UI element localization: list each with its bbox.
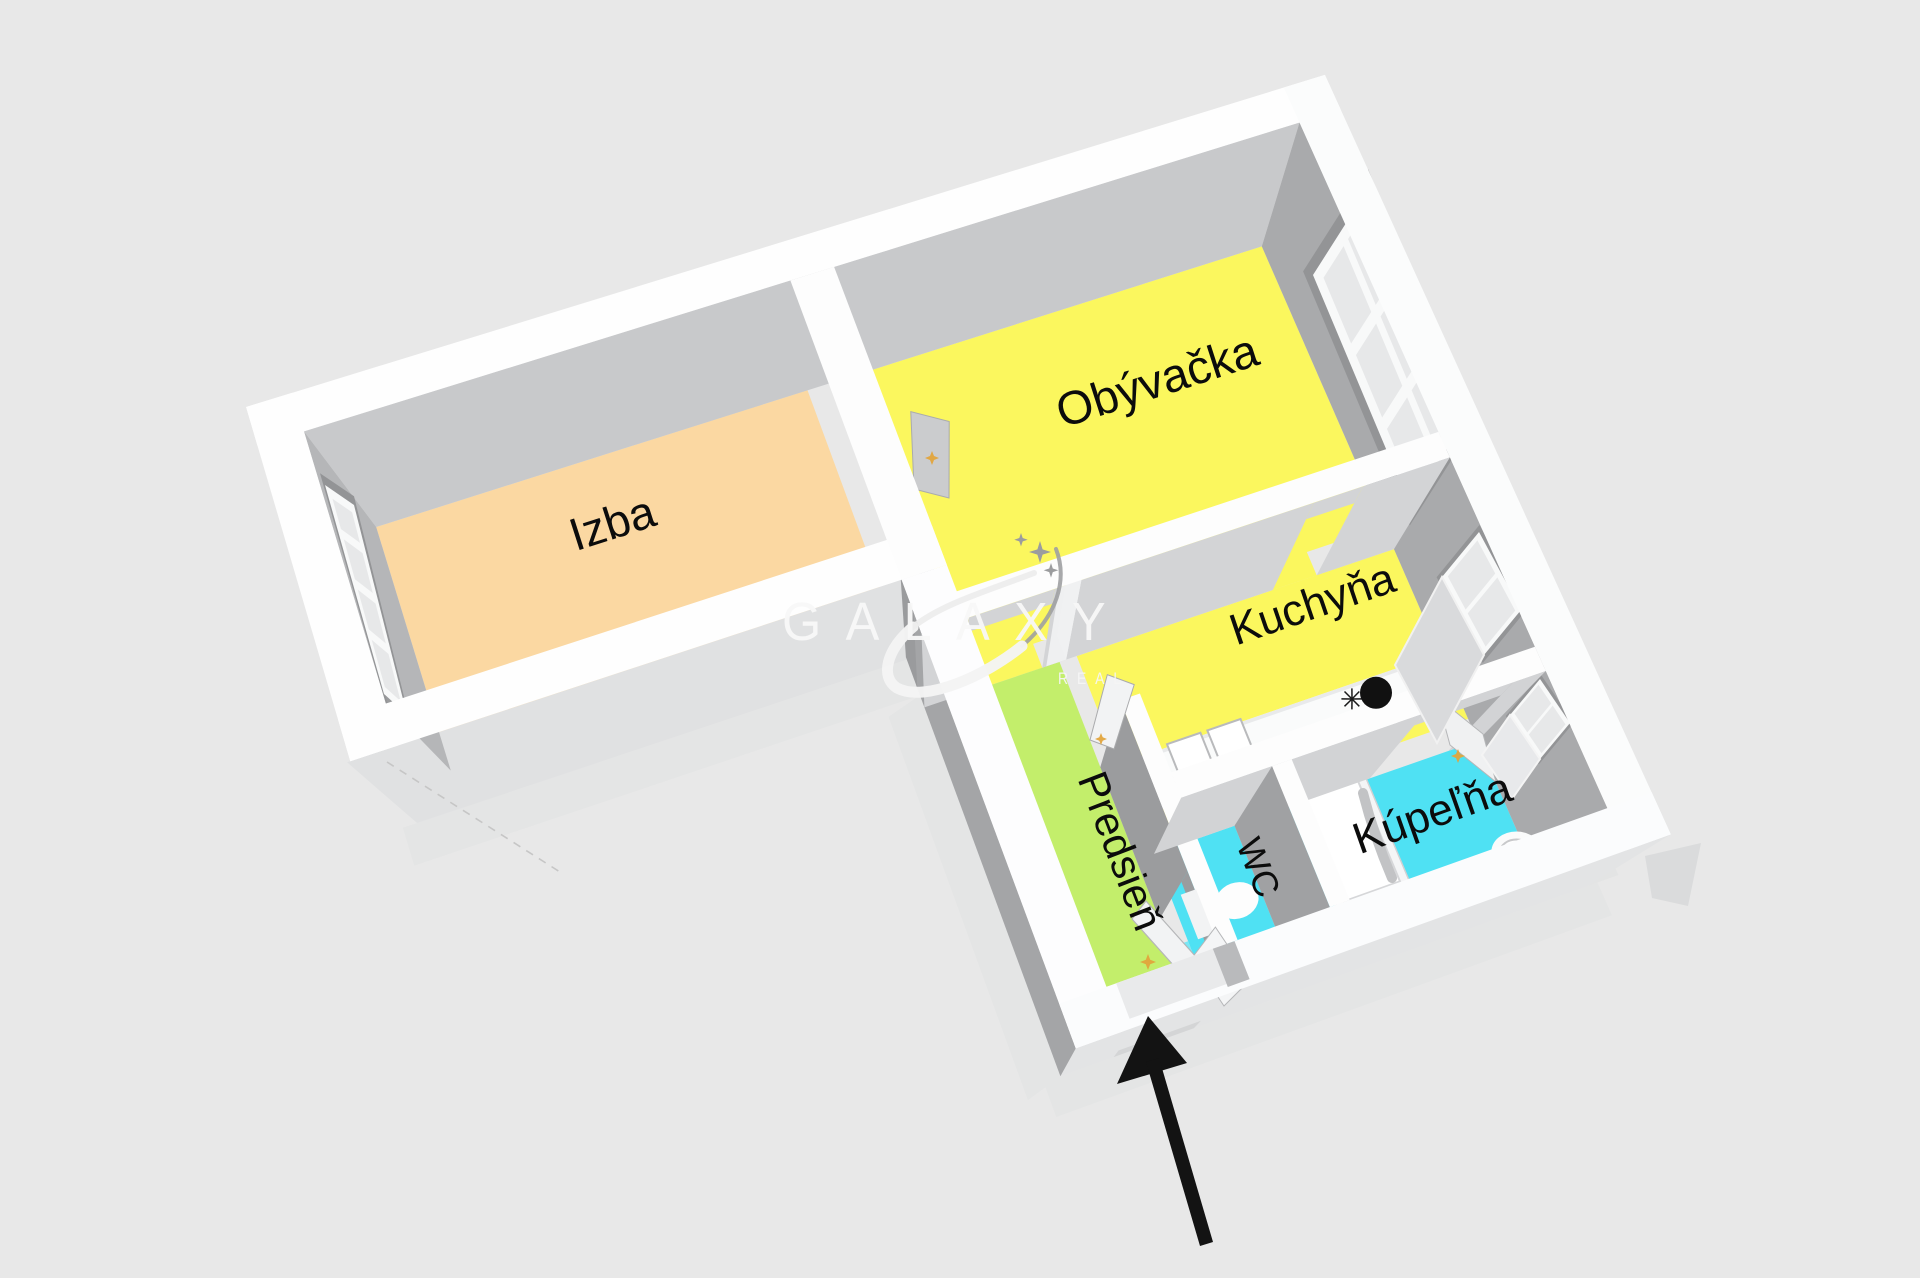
- svg-text:REAL: REAL: [1058, 669, 1130, 688]
- svg-text:GALAXY: GALAXY: [782, 592, 1130, 652]
